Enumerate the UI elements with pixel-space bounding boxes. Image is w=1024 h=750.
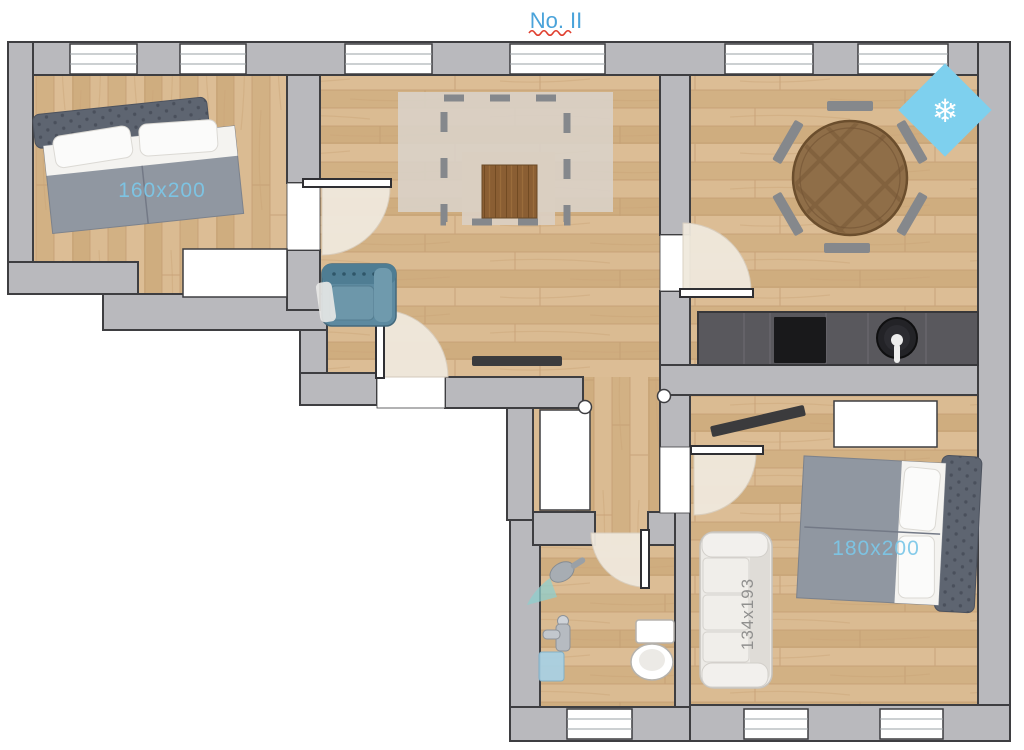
door-opening [287,183,320,250]
door-leaf [303,179,391,187]
wall-segment [675,512,690,707]
dining-chair [827,101,873,111]
window [880,709,943,739]
door-leaf [641,530,649,588]
wall-segment [445,377,583,408]
wall-segment [660,75,690,235]
door-opening [377,377,445,408]
wall-segment [300,373,377,405]
door-leaf [680,289,753,297]
wall-segment [978,42,1010,741]
wall-segment [660,365,1010,395]
faucet-spout [543,630,560,639]
pillow [138,119,218,156]
window [744,709,808,739]
floor-plan-svg: No. II [0,0,1024,750]
toilet-bowl-inner [639,649,665,671]
pillow [899,466,941,531]
snowflake-icon: ❄ [932,93,959,129]
dining-chair [824,243,870,253]
window [510,44,605,74]
wardrobe-wood-block [482,165,537,218]
wall-segment [8,262,138,294]
wall-segment [8,42,33,293]
counter-top [698,312,978,365]
door-opening [660,447,690,513]
planned-wardrobe-zone [398,92,613,225]
floor-plan-page: No. II [0,0,1024,750]
window [70,44,137,74]
sofa [700,532,772,688]
sofa-armrest [702,663,768,687]
wall-segment [690,705,1010,741]
window-sill [834,401,937,447]
armchair-seat [330,286,374,320]
wall-segment [507,408,533,520]
wall-segment [533,512,595,545]
page-title[interactable]: No. II [530,8,583,33]
window [345,44,432,74]
door-leaf [691,446,763,454]
couch-size-label: 134x193 [738,578,757,650]
wall-segment [300,330,327,377]
window [180,44,246,74]
hallway-closet [540,410,590,510]
toilet [631,620,674,680]
cooktop [774,317,826,363]
double-bed-180 [796,448,982,613]
window [725,44,813,74]
window [567,709,632,739]
sofa-armrest [702,533,768,557]
glass-cup [539,652,564,681]
armchair-arm [374,268,392,322]
window [858,44,948,74]
hinge-dot [658,390,671,403]
toilet-tank [636,620,674,643]
hinge-dot [579,401,592,414]
bed-size-label-small: 160x200 [118,179,206,202]
wall-segment [287,250,320,310]
tv-bar [472,356,562,366]
armchair [315,264,396,326]
bed-size-label-large: 180x200 [832,537,920,560]
wall-segment [287,75,320,183]
window-sill [183,249,287,297]
kitchen-counter [698,312,978,365]
